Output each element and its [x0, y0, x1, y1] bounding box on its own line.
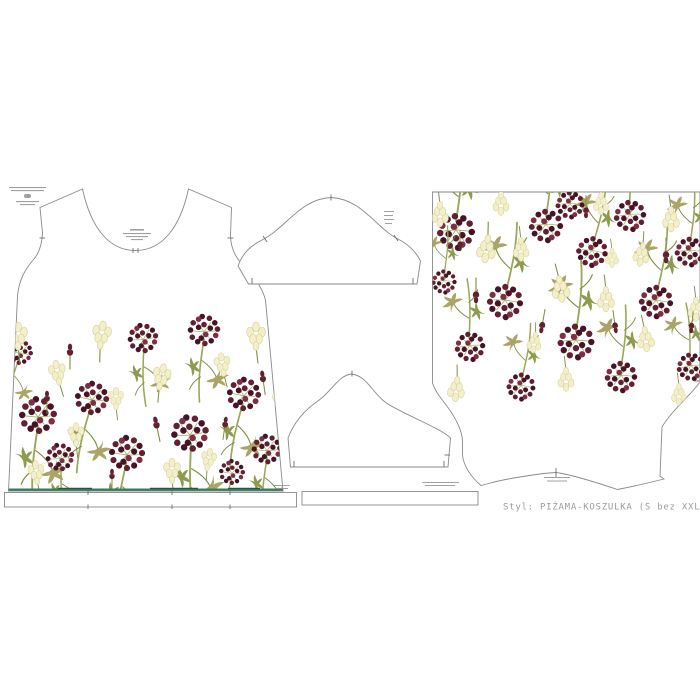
sleeve-piece-bottom [288, 371, 451, 468]
pattern-layout-canvas: Styl: PIŻAMA-KOSZULKA (S bez XXL [0, 0, 700, 700]
sleeve-top-outline [238, 198, 421, 285]
hem-strip-2-outline [302, 492, 478, 506]
back-neck-label [544, 477, 570, 482]
hem-strip-1 [5, 491, 297, 510]
sleeve-top-size-label [384, 211, 394, 224]
back-panel-piece [422, 141, 700, 490]
hem-strip-2-label [422, 482, 459, 486]
sleeve-bottom-outline [288, 374, 451, 467]
hem-strip-2 [302, 492, 478, 506]
style-caption: Styl: PIŻAMA-KOSZULKA (S bez XXL [503, 502, 700, 513]
front-neck-size-label [123, 229, 151, 240]
front-piece [0, 189, 294, 535]
hem-strip-1-outline [5, 493, 297, 508]
front-piece-info-label [9, 187, 46, 205]
sleeve-piece-top [238, 195, 421, 285]
